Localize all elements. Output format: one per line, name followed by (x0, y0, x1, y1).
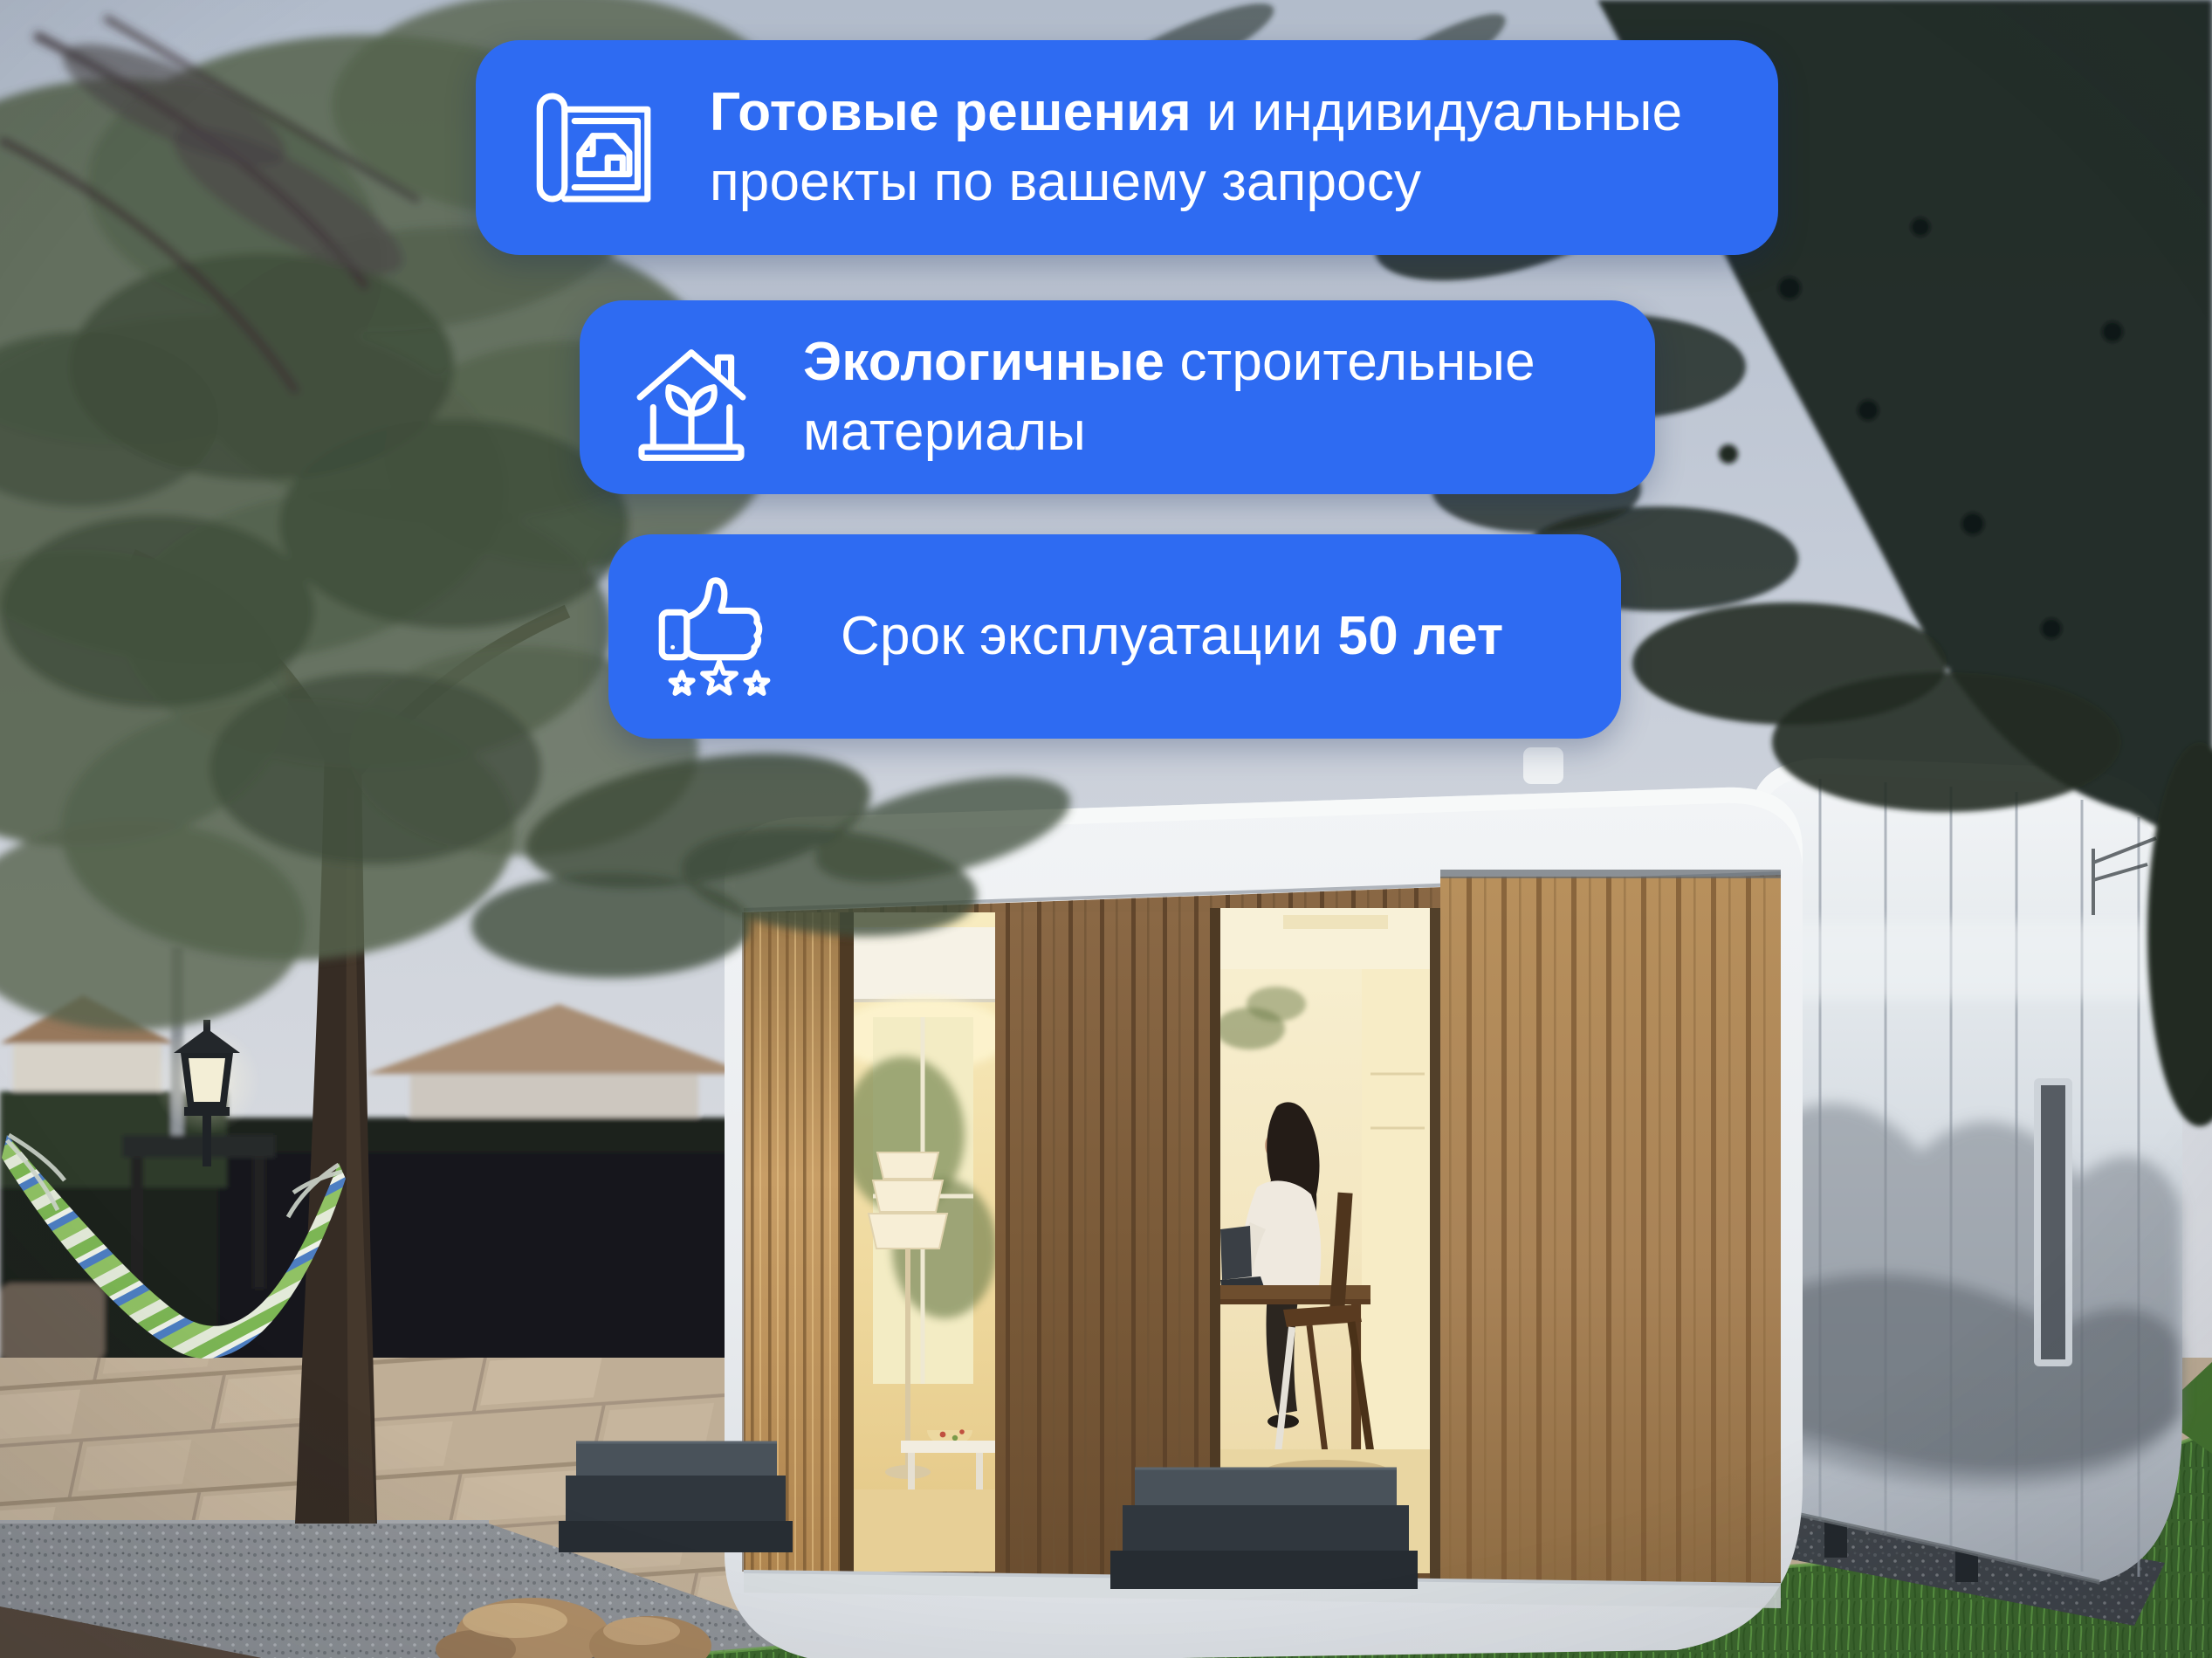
feature-badge-lifespan: Срок эксплуатации 50 лет (608, 534, 1621, 739)
badge-line-1-bold: Готовые решения (710, 82, 1192, 142)
badge-line-2: проекты по вашему запросу (710, 148, 1682, 217)
thumbs-up-stars-icon (649, 566, 790, 707)
blueprint-house-icon (528, 81, 661, 214)
feature-badge-eco-materials: Экологичные строительные материалы (580, 300, 1655, 494)
badge-line-1-regular: строительные (1164, 332, 1535, 392)
badge-line-1-bold: Экологичные (803, 332, 1164, 392)
badge-line-1-regular: Срок эксплуатации (841, 606, 1338, 666)
eco-house-icon (625, 331, 758, 464)
promo-banner: Готовые решения и индивидуальные проекты… (0, 0, 2212, 1658)
badge-line-1: Экологичные строительные (803, 327, 1535, 397)
badge-text: Экологичные строительные материалы (803, 327, 1535, 467)
badge-line-1: Срок эксплуатации 50 лет (841, 602, 1504, 671)
badge-text: Готовые решения и индивидуальные проекты… (710, 78, 1682, 217)
badge-line-1: Готовые решения и индивидуальные (710, 78, 1682, 148)
badge-line-1-bold: 50 лет (1338, 606, 1504, 666)
badge-text: Срок эксплуатации 50 лет (841, 602, 1504, 671)
feature-badge-ready-solutions: Готовые решения и индивидуальные проекты… (476, 40, 1778, 255)
badge-line-2: материалы (803, 397, 1535, 467)
badge-line-1-regular: и индивидуальные (1192, 82, 1682, 142)
